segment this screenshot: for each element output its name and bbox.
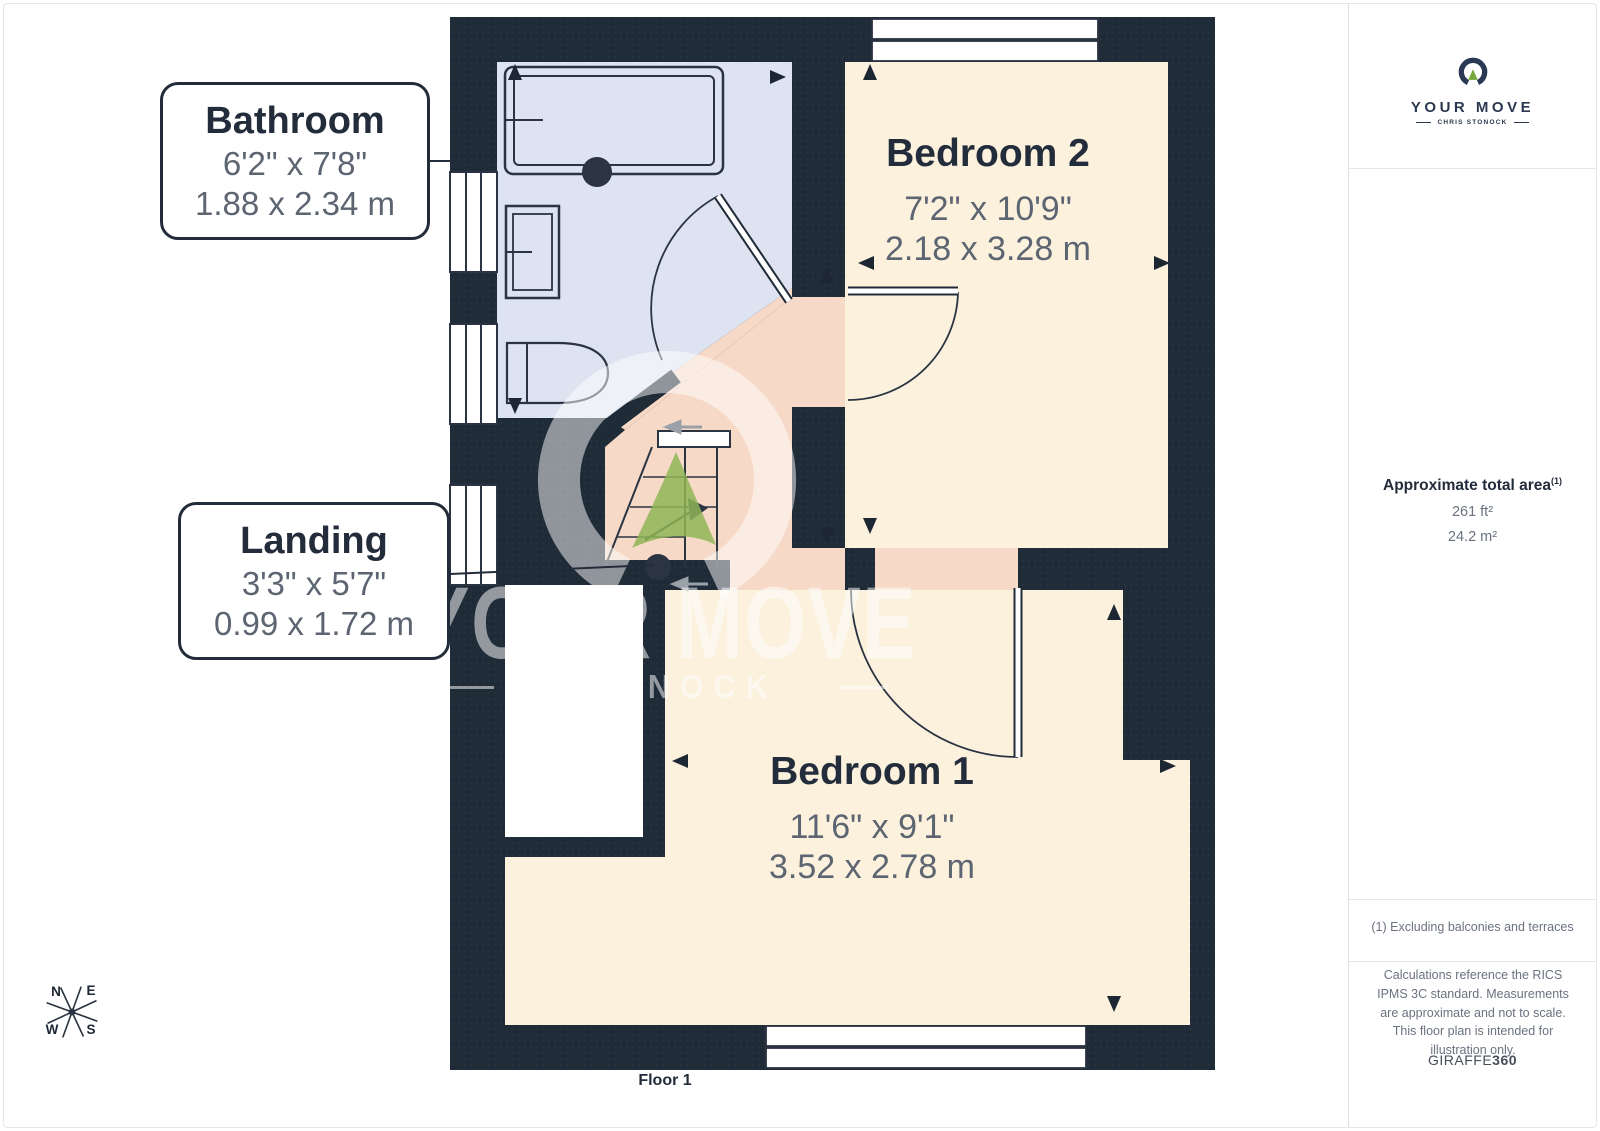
- landing-dims-metric: 0.99 x 1.72 m: [181, 604, 447, 644]
- compass: N E W S: [46, 983, 98, 1037]
- bathroom-callout: Bathroom 6'2" x 7'8" 1.88 x 2.34 m: [160, 82, 430, 240]
- window-left-3: [450, 485, 497, 585]
- wall-stub: [845, 548, 875, 590]
- total-area-title: Approximate total area(1): [1349, 476, 1596, 495]
- bedroom1-name: Bedroom 1: [702, 750, 1042, 795]
- sidebar-divider-1: [1349, 168, 1596, 169]
- bathroom-dims-imperial: 6'2" x 7'8": [163, 144, 427, 184]
- sidebar-footnote: (1) Excluding balconies and terraces: [1349, 920, 1596, 934]
- sidebar-divider-3: [1349, 961, 1596, 962]
- floor-label: Floor 1: [585, 1072, 745, 1090]
- window-left-1: [450, 172, 497, 272]
- total-area-footnote-marker: (1): [1551, 476, 1562, 486]
- agency-logo-brand: YOUR MOVE: [1349, 99, 1596, 116]
- bedroom1-dims-imperial: 11'6" x 9'1": [702, 807, 1042, 847]
- sidebar-disclaimer: Calculations reference the RICS IPMS 3C …: [1368, 966, 1578, 1060]
- sidebar-divider-2: [1349, 899, 1596, 900]
- bedroom2-label: Bedroom 2 7'2" x 10'9" 2.18 x 3.28 m: [818, 132, 1158, 269]
- bedroom1-label: Bedroom 1 11'6" x 9'1" 3.52 x 2.78 m: [702, 750, 1042, 887]
- giraffe360-brand: GIRAFFE360: [1349, 1052, 1596, 1068]
- bathroom-dims-metric: 1.88 x 2.34 m: [163, 184, 427, 224]
- window-left-2: [450, 324, 497, 424]
- logo-dash-right: [1514, 122, 1529, 123]
- compass-e: E: [86, 983, 95, 998]
- compass-n: N: [51, 984, 61, 999]
- agency-logo-icon: [1451, 56, 1495, 90]
- total-area-sqm: 24.2 m²: [1349, 529, 1596, 545]
- bedroom2-dims-metric: 2.18 x 3.28 m: [818, 229, 1158, 269]
- bedroom2-dims-imperial: 7'2" x 10'9": [818, 189, 1158, 229]
- landing-name: Landing: [181, 519, 447, 565]
- agency-logo-sub: CHRIS STONOCK: [1349, 119, 1596, 126]
- landing-callout: Landing 3'3" x 5'7" 0.99 x 1.72 m: [178, 502, 450, 660]
- landing-dims-imperial: 3'3" x 5'7": [181, 564, 447, 604]
- bedroom2-name: Bedroom 2: [818, 132, 1158, 177]
- bathroom-name: Bathroom: [163, 99, 427, 145]
- sidebar: YOUR MOVE CHRIS STONOCK Approximate tota…: [1348, 4, 1596, 1127]
- wall-below-bedroom2-door: [792, 407, 845, 548]
- floorplan-page: N E W S YOUR MOVE STONOCK Bathroom 6'2" …: [0, 0, 1600, 1131]
- compass-s: S: [86, 1022, 95, 1037]
- bedroom1-dims-metric: 3.52 x 2.78 m: [702, 847, 1042, 887]
- total-area-sqft: 261 ft²: [1349, 504, 1596, 520]
- total-area-block: Approximate total area(1) 261 ft² 24.2 m…: [1349, 476, 1596, 545]
- compass-w: W: [46, 1022, 59, 1037]
- void-cupboard: [505, 585, 643, 837]
- agency-logo: YOUR MOVE CHRIS STONOCK: [1349, 56, 1596, 126]
- logo-dash-left: [1416, 122, 1431, 123]
